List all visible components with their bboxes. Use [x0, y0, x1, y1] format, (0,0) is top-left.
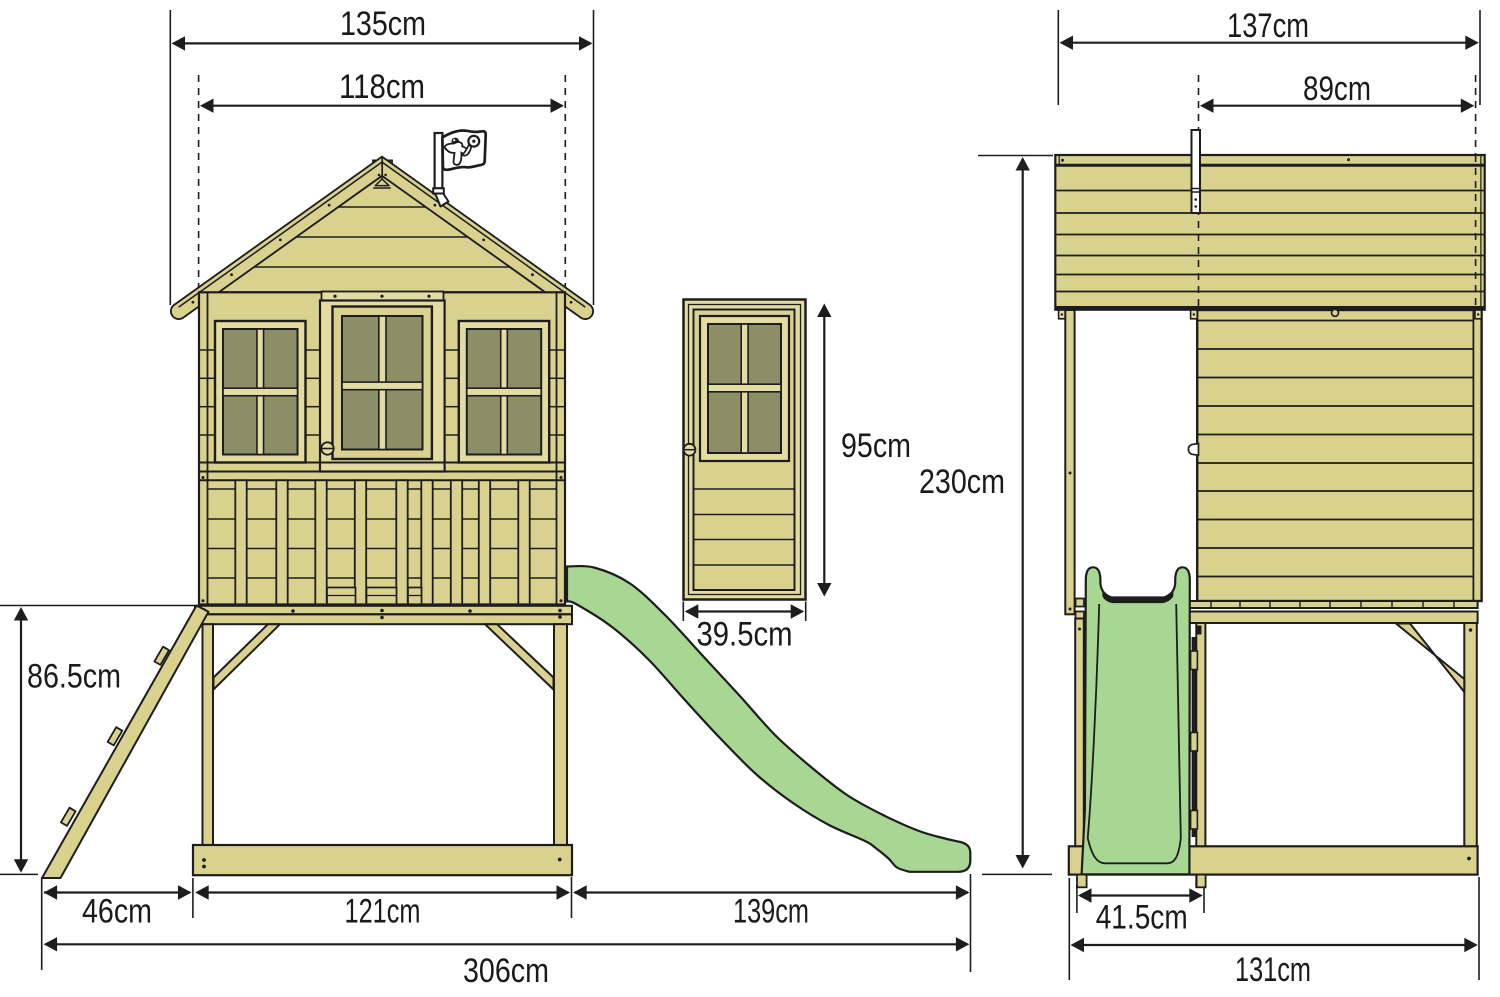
svg-text:121cm: 121cm — [345, 893, 421, 931]
svg-text:89cm: 89cm — [1303, 70, 1371, 108]
svg-text:46cm: 46cm — [82, 893, 152, 931]
svg-text:39.5cm: 39.5cm — [697, 615, 793, 653]
svg-text:137cm: 137cm — [1227, 7, 1309, 45]
svg-text:86.5cm: 86.5cm — [27, 658, 121, 696]
svg-text:230cm: 230cm — [919, 463, 1005, 501]
svg-text:118cm: 118cm — [339, 68, 425, 106]
svg-text:135cm: 135cm — [340, 5, 426, 43]
svg-text:131cm: 131cm — [1235, 951, 1311, 989]
svg-text:306cm: 306cm — [463, 952, 549, 990]
svg-text:95cm: 95cm — [841, 427, 911, 465]
svg-text:139cm: 139cm — [733, 893, 809, 931]
svg-text:41.5cm: 41.5cm — [1096, 899, 1188, 937]
